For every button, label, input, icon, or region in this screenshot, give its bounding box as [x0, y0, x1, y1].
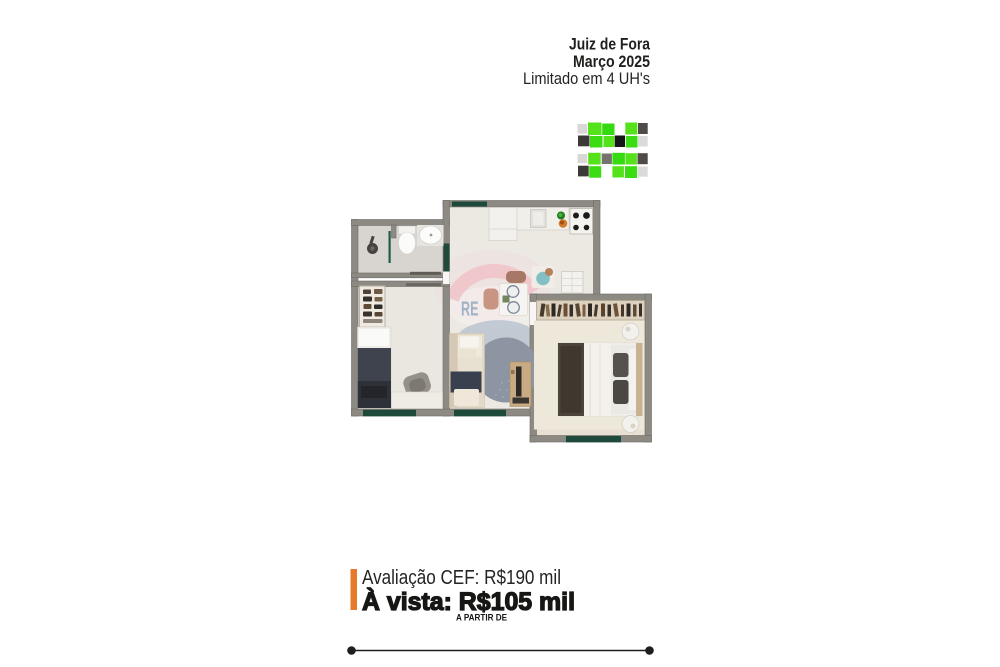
svg-text:A PARTIR DE: A PARTIR DE — [456, 613, 507, 624]
svg-text:Avaliação CEF: R$190 mil: Avaliação CEF: R$190 mil — [362, 567, 561, 589]
svg-text:RE: RE — [461, 299, 479, 321]
svg-text:Limitado em 4 UH's: Limitado em 4 UH's — [523, 69, 650, 88]
svg-text:Juiz de Fora: Juiz de Fora — [569, 35, 650, 54]
